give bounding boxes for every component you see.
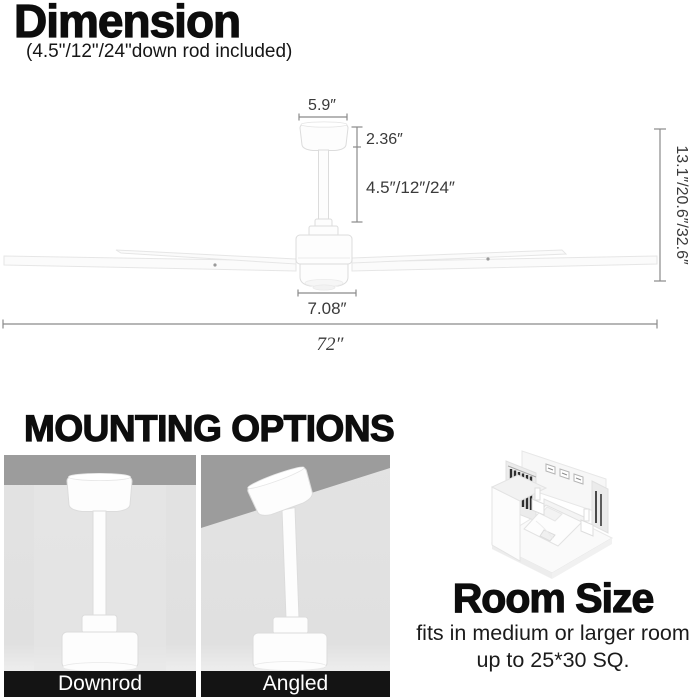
downrod-mount-illustration xyxy=(4,455,196,672)
overall-height-label: 13.1″/20.6″/32.6″ xyxy=(673,145,690,265)
overall-height-dimension: 13.1″/20.6″/32.6″ xyxy=(654,129,690,281)
fan-downrod xyxy=(282,508,299,619)
fan-canopy xyxy=(67,473,132,511)
motor-width-label: 7.08″ xyxy=(307,299,346,318)
mounting-option-downrod-image: Downrod xyxy=(4,455,196,697)
fan-downrod xyxy=(319,150,329,224)
fan-motor-housing xyxy=(296,219,352,290)
fan-dimension-diagram: 5.9″ 2.36″ 4.5″/12″/24″ 7.08″ 72″ 13.1″/… xyxy=(0,90,698,370)
angled-label-bar: Angled xyxy=(201,671,390,697)
room-size-title: Room Size xyxy=(453,575,654,622)
canopy-height-label: 2.36″ xyxy=(366,131,403,148)
motor-width-dimension: 7.08″ xyxy=(298,290,356,319)
right-wall xyxy=(592,481,608,533)
fan-downrod xyxy=(93,511,106,617)
blade-span-dimension: 72″ xyxy=(3,320,657,356)
room-size-caption-line2: up to 25*30 SQ. xyxy=(477,648,630,673)
room-size-caption-line1: fits in medium or larger room xyxy=(416,621,690,646)
downrod-label-bar: Downrod xyxy=(4,671,196,697)
angled-label: Angled xyxy=(263,672,328,696)
downrod-length-label: 4.5″/12″/24″ xyxy=(366,178,455,197)
fan-motor xyxy=(253,617,327,671)
room-illustration xyxy=(484,443,622,583)
mounting-options-title: MOUNTING OPTIONS xyxy=(24,408,394,450)
blade-span-label: 72″ xyxy=(317,334,345,355)
page-subtitle: (4.5"/12"/24"down rod included) xyxy=(26,41,292,63)
mounting-option-angled-image: Angled xyxy=(201,455,390,697)
angled-mount-illustration xyxy=(201,455,390,672)
fan-canopy xyxy=(300,122,348,151)
canopy-width-label: 5.9″ xyxy=(308,97,336,114)
blade-screw xyxy=(213,263,216,266)
downrod-label: Downrod xyxy=(58,672,142,696)
downrod-height-dimension: 2.36″ 4.5″/12″/24″ xyxy=(352,127,455,222)
blade-screw xyxy=(486,257,489,260)
canopy-width-dimension: 5.9″ xyxy=(299,97,347,121)
